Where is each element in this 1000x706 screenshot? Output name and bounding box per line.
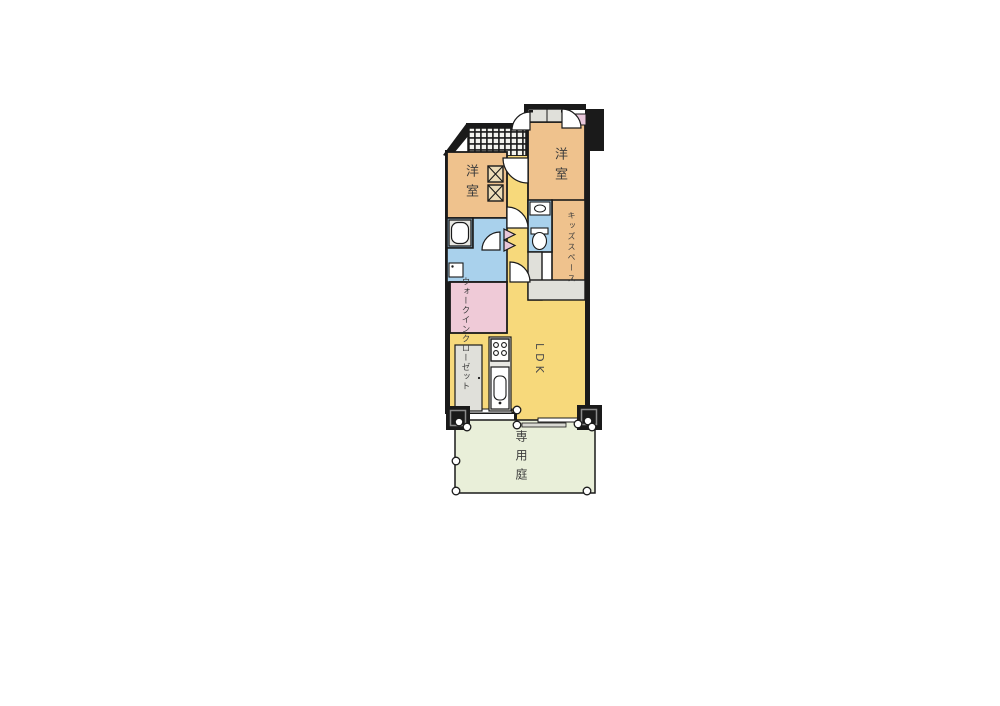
- fence-post: [588, 423, 596, 431]
- toilet: [531, 228, 548, 250]
- fence-post: [463, 423, 471, 431]
- label-bedroom-left: 洋室: [461, 164, 480, 204]
- label-bedroom-right: 洋室: [550, 147, 569, 187]
- door-arc-entrance: [562, 109, 581, 128]
- window-ldk-right: [538, 418, 580, 422]
- fence-post: [452, 487, 460, 495]
- washing-machine: [449, 263, 463, 277]
- label-private-garden: 専用庭: [513, 430, 530, 487]
- fence-post: [574, 420, 582, 428]
- fence-post: [583, 487, 591, 495]
- fence-post: [452, 457, 460, 465]
- fence-post: [455, 418, 463, 426]
- fence-post: [513, 421, 521, 429]
- bathtub: [449, 220, 471, 246]
- room-ldk-main: [517, 300, 585, 421]
- kitchen-counter: [489, 337, 511, 411]
- door-arc-porch: [512, 112, 530, 130]
- window-sill: [522, 423, 566, 427]
- fence-post: [513, 406, 521, 414]
- gas-stove: [491, 339, 509, 361]
- label-walk-in-closet: ウォークインクローゼット: [458, 277, 471, 339]
- washbasin: [530, 202, 550, 215]
- floorplan-canvas: 洋室 洋室 キッズスペース ウォークインクローゼット LDK 専用庭: [0, 0, 1000, 706]
- label-ldk: LDK: [533, 343, 546, 377]
- kitchen-sink: [491, 367, 509, 409]
- label-kids-space: キッズスペース: [566, 211, 577, 285]
